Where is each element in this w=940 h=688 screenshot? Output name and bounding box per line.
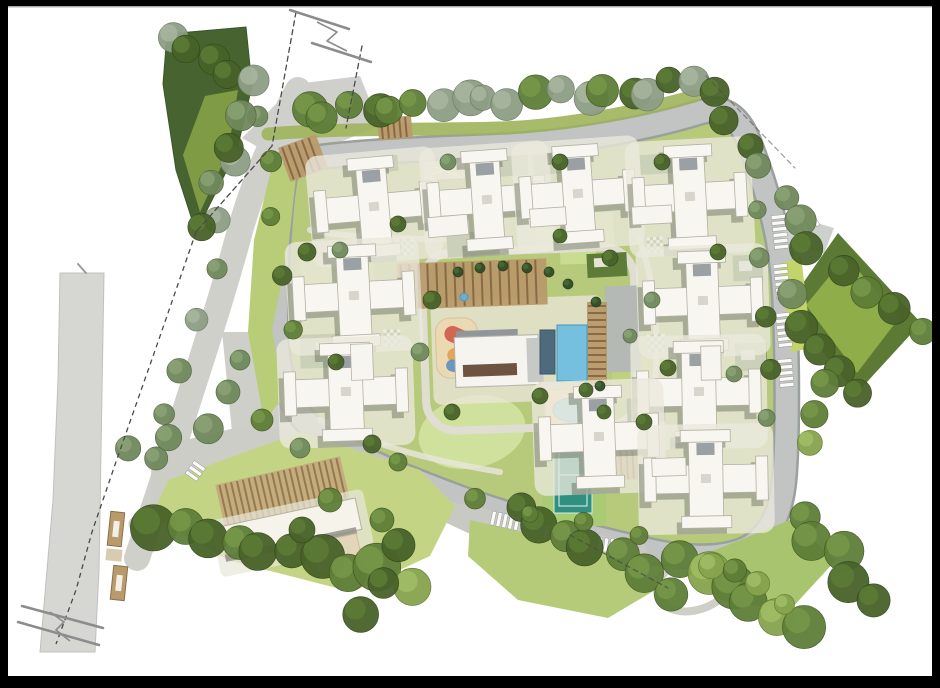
road-top-tick <box>78 264 86 273</box>
tower-link <box>652 457 687 476</box>
public-road-west <box>40 273 104 652</box>
tower-10 <box>637 423 775 535</box>
tower-link <box>350 344 373 381</box>
trellis-east <box>587 302 607 384</box>
swimming-pool <box>557 325 587 381</box>
fountain <box>460 293 468 301</box>
tower-link <box>632 205 673 225</box>
gate-plaza <box>105 548 122 562</box>
site-plan-canvas <box>0 0 940 688</box>
tree-arc-se-2 <box>790 502 890 617</box>
tower-6 <box>276 335 416 450</box>
lap-pool <box>540 330 555 374</box>
tower-link <box>427 214 469 237</box>
tower-link <box>529 207 566 227</box>
tree-tail-east <box>797 369 839 455</box>
tower-4 <box>624 136 756 258</box>
clubhouse-deck <box>463 363 517 377</box>
road-break-symbol <box>290 10 349 29</box>
tower-link <box>701 346 722 380</box>
site-plan <box>0 0 940 688</box>
